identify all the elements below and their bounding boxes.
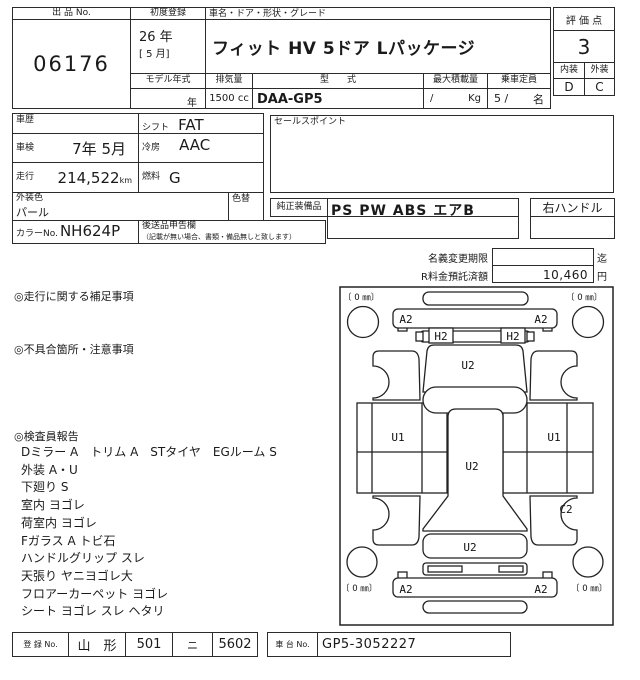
damage-label-front_bumper_left: A2 [399,313,412,326]
fender-front-left [373,351,420,400]
front-bumper [393,309,557,328]
damage-label-headlight_left: H2 [434,330,447,343]
wheel-front-left [348,307,379,338]
reg-number-cell: 5602 [212,632,258,657]
damage-label-tailgate: U2 [463,541,476,554]
reg-class-cell: 501 [125,632,173,657]
tire-depth-front_right: 〔 0 ㎜〕 [566,292,602,303]
damage-label-front_door_left: U1 [391,431,404,444]
wheel-rear-left [347,547,377,577]
reg-area-cell: 山 形 [68,632,126,657]
rear-bumper [393,578,557,597]
wheel-front-right [573,307,604,338]
damage-label-headlight_right: H2 [506,330,519,343]
auction-sheet: 出 品 No. 06176 初度登録 26 年 [ 5 月] 車名・ドア・形状・… [0,0,640,680]
damage-label-rear_bumper_left: A2 [399,583,412,596]
reg-no-label-cell: 登 録 No. [12,632,69,657]
hood [423,345,527,392]
taillight-bar [423,563,527,575]
tire-depth-rear_left: 〔 0 ㎜〕 [341,583,377,594]
damage-label-roof: U2 [465,460,478,473]
damage-label-front_bumper_right: A2 [534,313,547,326]
quarter-rear-left [373,496,420,545]
reg-kana-cell: ニ [172,632,213,657]
chassis-label-cell: 車 台 No. [267,632,318,657]
tire-depth-rear_right: 〔 0 ㎜〕 [571,583,607,594]
tire-depth-front_left: 〔 0 ㎜〕 [343,292,379,303]
damage-label-hood: U2 [461,359,474,372]
headlight-end-left [416,332,423,341]
rear-lower-strip [423,601,527,613]
fender-front-right [530,351,577,400]
wheel-rear-right [573,547,603,577]
chassis-value-cell: GP5-3052227 [317,632,511,657]
damage-label-rear_bumper_right: A2 [534,583,547,596]
damage-diagram-svg: A2A2H2H2U2U1U1U2C2U2A2A2〔 0 ㎜〕〔 0 ㎜〕〔 0 … [0,0,640,680]
damage-label-front_door_right: U1 [547,431,560,444]
front-upper-strip [423,292,528,305]
headlight-end-right [527,332,534,341]
damage-label-rear_quarter_right: C2 [559,503,572,516]
